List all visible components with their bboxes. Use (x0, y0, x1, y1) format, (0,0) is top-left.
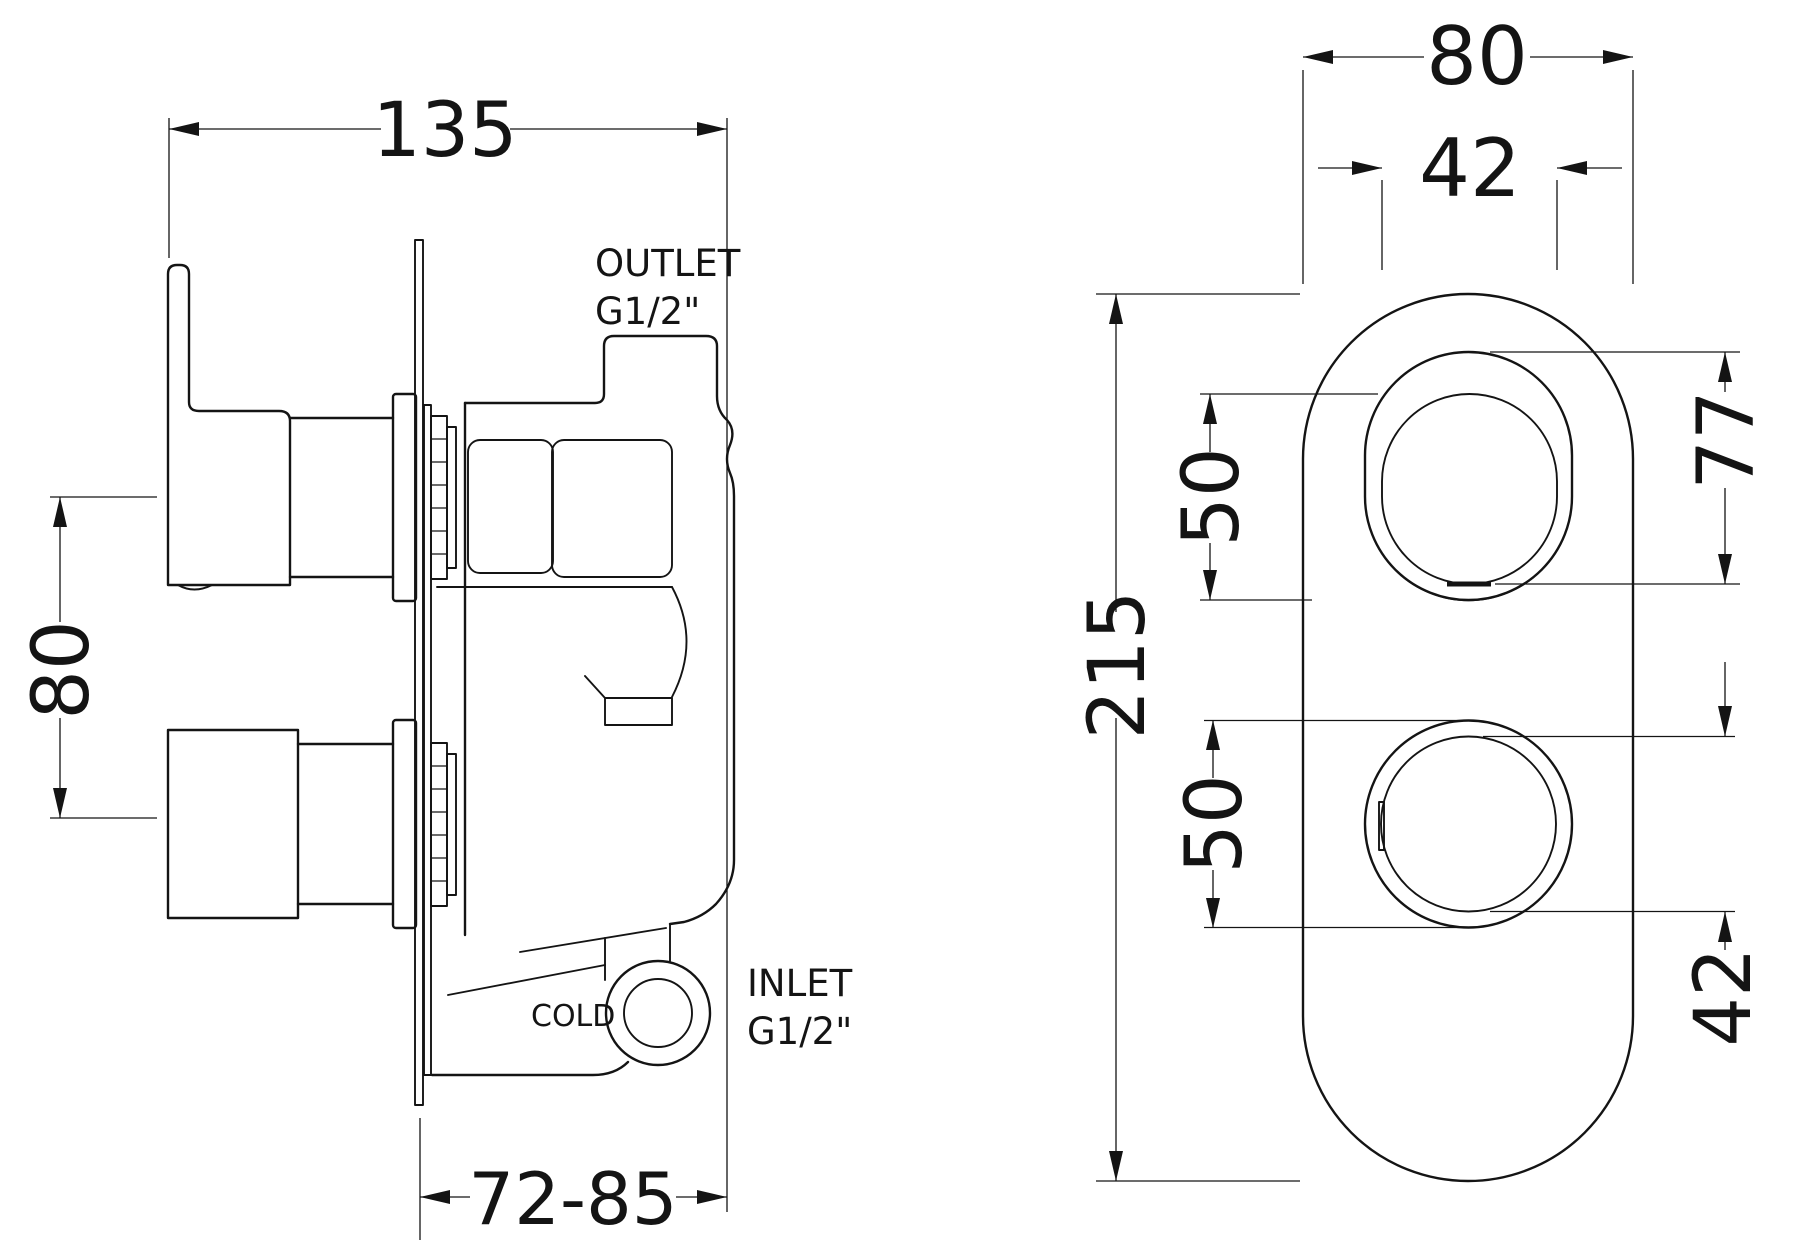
dim-215-height-label: 215 (1073, 591, 1163, 740)
cartridge-b (552, 440, 672, 577)
lever-handle-blade (168, 265, 290, 585)
lever-slot-outer (1365, 352, 1572, 600)
dim-42-slot: 42 (1318, 122, 1622, 270)
knob-stem (298, 744, 393, 904)
dim-80-width-label: 80 (1426, 10, 1528, 103)
inlet-thread-label: G1/2" (747, 1010, 852, 1053)
outlet-label: OUTLET (595, 242, 741, 285)
outlet-thread-label: G1/2" (595, 290, 700, 333)
cartridge-a (468, 440, 553, 573)
body-mid-arc (672, 587, 687, 697)
dim-72-85-label: 72-85 (468, 1157, 677, 1241)
dim-135-label: 135 (372, 85, 517, 174)
mounting-bracket (424, 405, 431, 1075)
handle-stem (290, 418, 393, 577)
dim-80-spacing: 80 (17, 497, 157, 818)
threaded-connector-bottom (431, 743, 456, 906)
knob-flange (393, 720, 416, 928)
body-seat (585, 676, 672, 725)
dim-42-slot-label: 42 (1419, 122, 1521, 215)
inlet-port-circle-outer (606, 961, 710, 1065)
cold-label: COLD (531, 999, 615, 1034)
body-lower-slants (448, 928, 666, 995)
inlet-port-circle-inner (624, 979, 692, 1047)
front-view: 80 42 215 50 (1073, 10, 1772, 1181)
dim-72-85: 72-85 (420, 1118, 727, 1241)
wall-plate-edge (415, 240, 423, 1105)
technical-drawing-page: 135 80 72-85 OUTLET G1/2" INLET G1/2" CO… (0, 0, 1796, 1250)
dim-42-knob-label: 42 (1679, 947, 1769, 1046)
dim-77-slot-label: 77 (1682, 390, 1772, 489)
inlet-label: INLET (747, 962, 853, 1005)
side-view: 135 80 72-85 OUTLET G1/2" INLET G1/2" CO… (17, 85, 853, 1241)
body-outline (465, 336, 734, 924)
valve-drawing: 135 80 72-85 OUTLET G1/2" INLET G1/2" CO… (0, 0, 1796, 1250)
threaded-connector-top (431, 416, 456, 579)
handle-flange (393, 394, 416, 601)
dim-50-knob-label: 50 (1170, 774, 1260, 873)
dim-80-spacing-label: 80 (17, 620, 107, 719)
valve-body (432, 336, 734, 1075)
body-bottom (432, 1062, 628, 1075)
dim-50-lever-label: 50 (1167, 447, 1257, 546)
dim-215-height: 215 (1073, 294, 1300, 1181)
temperature-knob (168, 730, 298, 918)
